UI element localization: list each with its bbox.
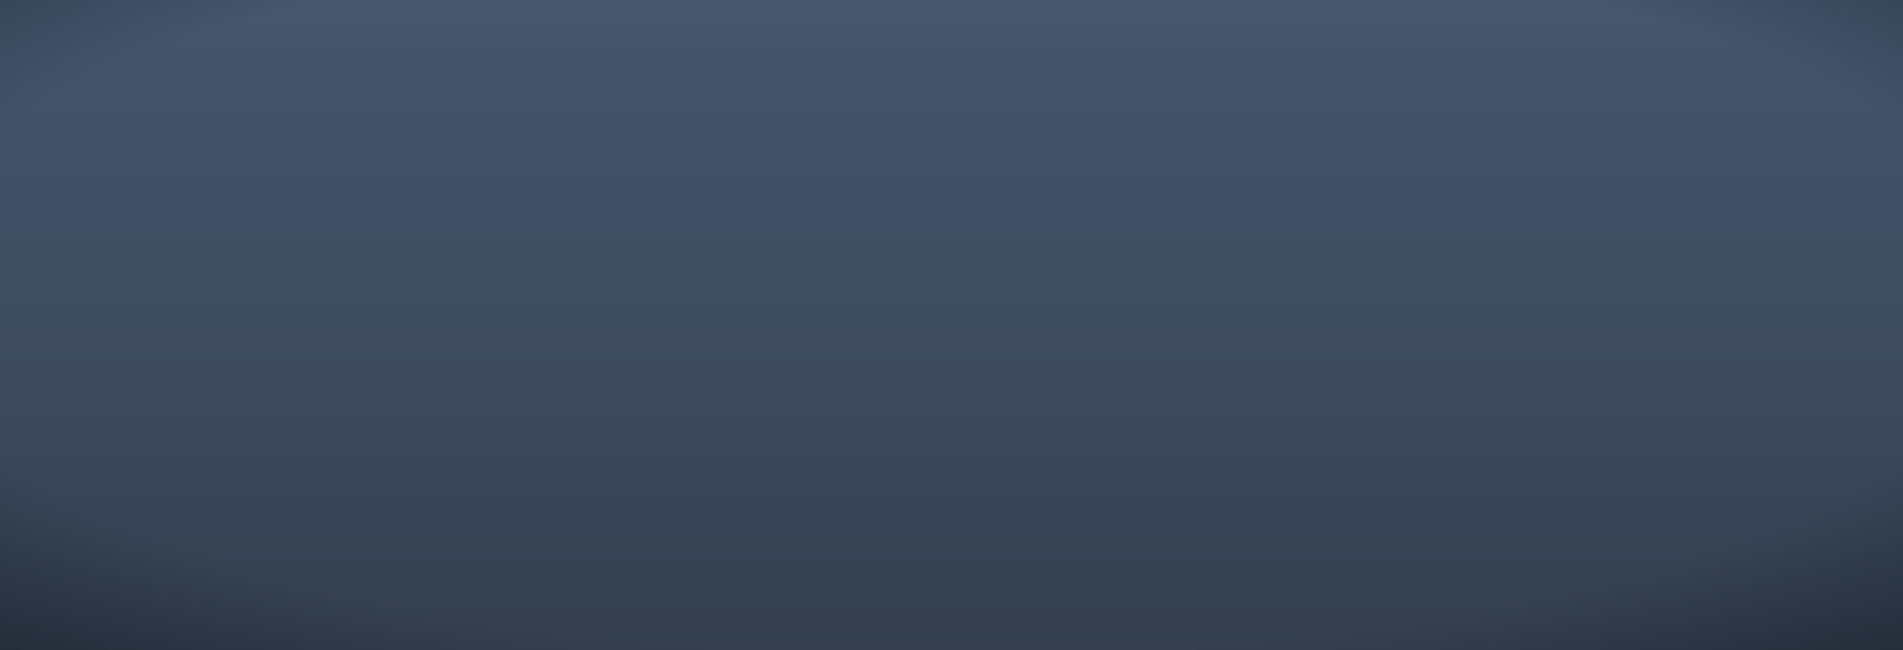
airport-night-rendering — [0, 0, 1903, 650]
vignette — [0, 0, 1903, 650]
scene-canvas — [0, 0, 1903, 650]
